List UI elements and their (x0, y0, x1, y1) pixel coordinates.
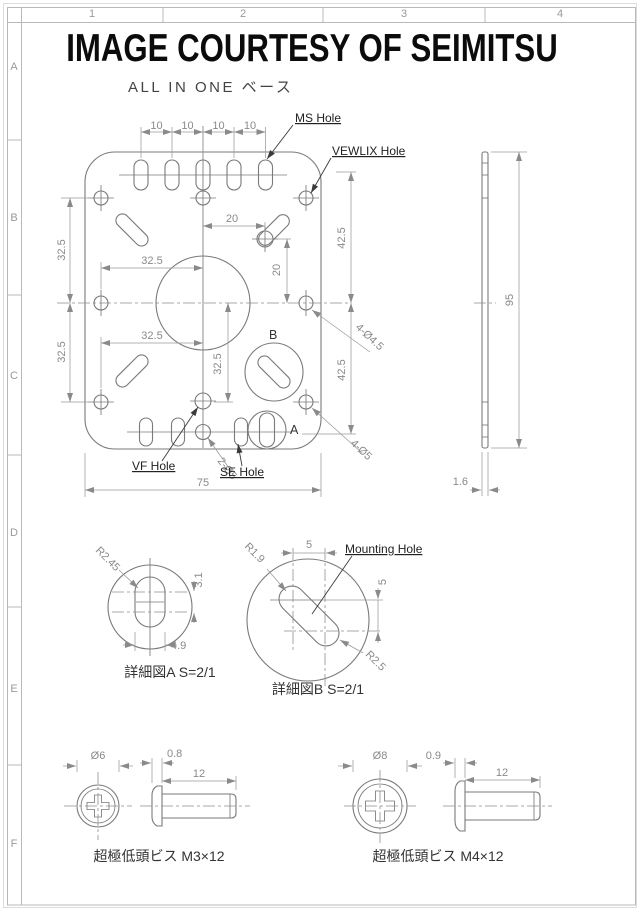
screw-m3-view: Ø6 0.8 12 超極低頭ビス M3×12 (63, 748, 250, 864)
grid-row-e: E (10, 683, 17, 695)
corner-holes (88, 185, 319, 415)
dim-side-thickness: 1.6 (453, 476, 468, 488)
header: IMAGE COURTESY OF SEIMITSU ALL IN ONE ベー… (66, 27, 557, 96)
technical-drawing-canvas: 1 2 3 4 A B C D E F IMAGE COURTESY OF SE… (0, 0, 640, 911)
dim-detail-a-radius: R2.45 (93, 545, 122, 574)
main-plate-view: 10 10 10 10 32.5 32.5 32.5 32.5 32.5 (56, 111, 406, 497)
dim-m4-dia: Ø8 (373, 750, 388, 762)
dim-detail-b-dx: 5 (306, 539, 312, 551)
dim-v20: 20 (271, 264, 283, 276)
label-mounting-hole: Mounting Hole (345, 542, 423, 556)
dim-detail-a-width: 4.9 (171, 640, 186, 652)
dim-h-bottom: 32.5 (141, 330, 162, 342)
dim-detail-b-r-large: R2.5 (363, 649, 388, 674)
screw-m4-caption: 超極低頭ビス M4×12 (372, 848, 503, 864)
dim-pitch-4: 10 (244, 120, 256, 132)
detail-b-view: 5 5 R1.9 R2.5 Mounting Hole 詳細図B S=2/1 (242, 539, 423, 697)
grid-col-1: 1 (89, 8, 95, 20)
dim-m4-head: 0.9 (426, 750, 441, 762)
dim-v-center: 32.5 (212, 353, 224, 374)
dim-holes-45: 4-Ø5 (348, 437, 374, 462)
label-ms-hole: MS Hole (295, 111, 341, 125)
page-subtitle: ALL IN ONE ベース (128, 79, 293, 96)
dim-horizontal-325: 32.5 32.5 32.5 (101, 255, 233, 402)
dim-pitch-2: 10 (181, 120, 193, 132)
detail-b-caption: 詳細図B S=2/1 (272, 681, 364, 697)
hole-labels: MS Hole VEWLIX Hole VF Hole SE Hole A B (132, 111, 406, 479)
detail-a-circle (248, 411, 286, 449)
dim-m3-dia: Ø6 (91, 750, 106, 762)
sheet-frame: 1 2 3 4 A B C D E F (4, 4, 637, 908)
detail-b-circle (245, 343, 303, 401)
dim-right-top: 42.5 (336, 227, 348, 248)
detail-a-caption: 詳細図A S=2/1 (124, 664, 216, 680)
hole-spec-leaders: 4-Ø4.5 4-Ø5 2-Ø5 (208, 310, 386, 482)
detail-a-view: 3.1 4.9 R2.45 詳細図A S=2/1 (93, 545, 216, 680)
grid-col-4: 4 (557, 8, 563, 20)
label-vf-hole: VF Hole (132, 459, 176, 473)
marker-detail-b: B (269, 328, 277, 342)
dim-detail-b-dy: 5 (377, 579, 389, 585)
dim-detail-a-length: 3.1 (193, 572, 205, 587)
dim-pitch-1: 10 (150, 120, 162, 132)
dim-m3-length: 12 (193, 768, 205, 780)
grid-row-f: F (11, 838, 18, 850)
dim-width: 75 (197, 477, 209, 489)
marker-detail-a: A (290, 423, 299, 437)
dim-pitch-3: 10 (212, 120, 224, 132)
side-view: 95 1.6 (453, 152, 527, 496)
dim-detail-b-r-small: R1.9 (242, 541, 267, 566)
dim-right-bottom: 42.5 (336, 359, 348, 380)
dim-side-height: 95 (504, 294, 516, 306)
screw-m3-caption: 超極低頭ビス M3×12 (93, 848, 224, 864)
grid-row-d: D (10, 527, 18, 539)
dim-h20: 20 (226, 213, 238, 225)
dim-m3-head: 0.8 (167, 748, 182, 760)
grid-row-c: C (10, 370, 18, 382)
dim-m4-length: 12 (496, 767, 508, 779)
page-title: IMAGE COURTESY OF SEIMITSU (66, 27, 557, 70)
dim-left-bottom: 32.5 (56, 341, 68, 362)
dim-h-top: 32.5 (141, 255, 162, 267)
dim-holes-445: 4-Ø4.5 (353, 321, 386, 353)
grid-row-a: A (10, 61, 18, 73)
grid-row-b: B (10, 212, 17, 224)
grid-col-2: 2 (240, 8, 246, 20)
dim-width-75: 75 (85, 453, 321, 497)
label-se-hole: SE Hole (220, 465, 264, 479)
dim-left-vertical: 32.5 32.5 (56, 198, 92, 402)
screw-m4-view: Ø8 0.9 12 超極低頭ビス M4×12 (338, 750, 552, 864)
drawing-page: 1 2 3 4 A B C D E F IMAGE COURTESY OF SE… (0, 0, 640, 911)
label-vewlix-hole: VEWLIX Hole (332, 144, 406, 158)
dim-left-top: 32.5 (56, 239, 68, 260)
grid-col-3: 3 (401, 8, 407, 20)
